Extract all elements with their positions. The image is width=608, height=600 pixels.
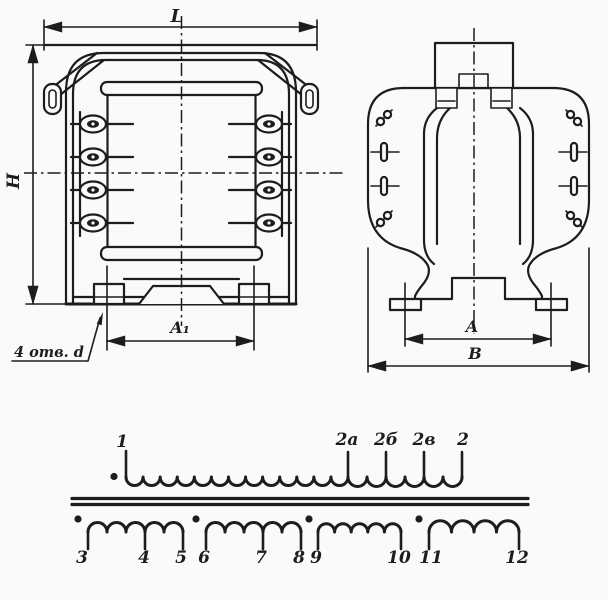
dim-label-A1: A₁ bbox=[168, 318, 189, 337]
dim-label-L: L bbox=[170, 6, 184, 27]
dimension-L: L bbox=[44, 6, 317, 50]
terminal-label-2a: 2а bbox=[335, 430, 359, 450]
terminal-label-2v: 2в bbox=[412, 430, 436, 450]
side-view: A B bbox=[368, 28, 589, 372]
winding-11-12 bbox=[429, 521, 519, 532]
diag-lug-icon bbox=[376, 211, 392, 227]
terminal-label-6: 6 bbox=[198, 548, 210, 568]
dimension-A1: A₁ bbox=[107, 318, 254, 341]
terminal-label-2: 2 bbox=[456, 430, 469, 450]
terminal-label-10: 10 bbox=[387, 548, 411, 568]
winding-9-10 bbox=[318, 524, 401, 532]
dimension-A: A bbox=[405, 317, 551, 339]
terminal-label-8: 8 bbox=[292, 548, 305, 568]
terminal-label-1: 1 bbox=[116, 432, 128, 452]
solder-lugs-left bbox=[71, 112, 133, 236]
terminal-label-9: 9 bbox=[310, 548, 322, 568]
cross-lug-icon bbox=[371, 143, 399, 161]
secondary-windings: 3 4 5 6 7 8 9 10 11 12 bbox=[74, 515, 529, 568]
solder-lugs-right bbox=[229, 112, 291, 236]
dim-label-A: A bbox=[464, 317, 478, 336]
terminal-label-3: 3 bbox=[76, 548, 88, 568]
polarity-dot bbox=[415, 515, 422, 522]
winding-3-4-5 bbox=[88, 523, 183, 533]
leader-arrow bbox=[97, 312, 103, 325]
drawing-canvas: L H A₁ 4 отв. d bbox=[0, 0, 608, 600]
winding-6-7-8 bbox=[206, 523, 301, 533]
front-view: L H A₁ 4 отв. d bbox=[4, 6, 343, 361]
diag-lug-icon bbox=[566, 211, 582, 227]
primary-leads bbox=[126, 451, 462, 477]
terminal-label-4: 4 bbox=[138, 548, 150, 568]
cross-lug-icon bbox=[559, 143, 587, 161]
terminal-label-2b: 2б bbox=[373, 430, 398, 450]
transformer-technical-drawing: L H A₁ 4 отв. d bbox=[0, 0, 608, 600]
coil-contour bbox=[424, 108, 533, 264]
strap-ear-right bbox=[301, 84, 318, 114]
strap-ear-left bbox=[44, 84, 61, 114]
terminals-left bbox=[371, 110, 399, 227]
secondary-leads bbox=[88, 532, 519, 549]
diag-lug-icon bbox=[566, 110, 582, 126]
primary-winding: 1 2а 2б 2в 2 bbox=[110, 430, 469, 487]
cross-lug-icon bbox=[371, 177, 399, 195]
polarity-dot bbox=[192, 515, 199, 522]
terminal-label-12: 12 bbox=[505, 548, 529, 568]
polarity-dot bbox=[110, 473, 117, 480]
polarity-dot bbox=[74, 515, 81, 522]
dim-label-H: H bbox=[4, 172, 24, 190]
terminal-label-11: 11 bbox=[419, 548, 443, 568]
cross-lug-icon bbox=[559, 177, 587, 195]
terminals-right bbox=[559, 110, 587, 227]
polarity-dot bbox=[305, 515, 312, 522]
holes-note: 4 отв. d bbox=[12, 312, 103, 361]
dim-label-B: B bbox=[467, 344, 482, 363]
core-lines bbox=[72, 499, 528, 505]
primary-humps bbox=[126, 477, 462, 487]
terminal-label-5: 5 bbox=[175, 548, 187, 568]
mounting-bracket-side bbox=[390, 278, 567, 346]
winding-schematic: 1 2а 2б 2в 2 3 4 5 6 7 8 9 10 11 12 bbox=[72, 430, 529, 568]
terminal-label-7: 7 bbox=[255, 548, 267, 568]
holes-note-text: 4 отв. d bbox=[14, 344, 84, 361]
diag-lug-icon bbox=[376, 110, 392, 126]
